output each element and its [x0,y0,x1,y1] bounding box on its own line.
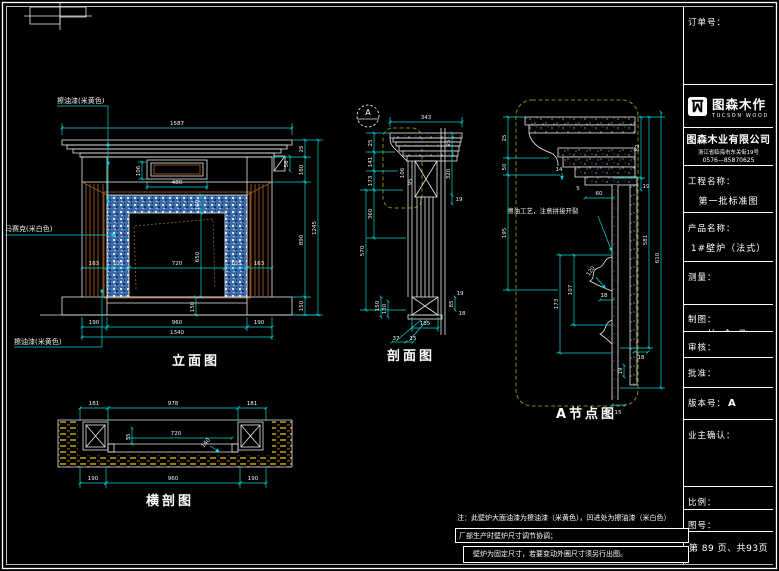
dim-sec-topwidth: 343 [421,115,432,121]
moulding-profile-lower [600,320,612,344]
dim-plan-width: 720 [171,431,182,437]
dim-base-total: 1340 [170,330,184,336]
drawing-canvas: 1587 106 480 56 163 103 720 103 163 100 [0,0,779,571]
figno-cell: 图号： [684,510,773,532]
check-cell: 审核： [684,332,773,358]
dim-total-width: 1587 [170,121,184,127]
section-title: 剖面图 [387,348,435,364]
label-mosaic: 马赛克(米白色) [5,224,53,233]
note-line1: 注：此壁炉大面油漆为擦油漆（米黄色），凹进处为擦油漆（米白色） [457,513,689,523]
dim-plan-bc: 960 [168,476,179,482]
order-label: 订单号： [688,18,726,28]
version-value: A [728,398,736,409]
company-address: 浙江省临海市东关街19号 [685,148,772,156]
dim-plan-tc: 978 [168,401,179,407]
moulding-profile-upper [590,257,612,291]
dim-sec-r3b: 19 [457,291,464,297]
dim-plan-br: 190 [248,476,259,482]
approve-cell: 批准： [684,358,773,388]
dim-det-d1: 25 [502,134,508,141]
firebox-dashed [134,219,215,289]
dim-mosaic-band: 100 [195,199,201,210]
owner-label: 业主确认： [688,431,736,441]
order-cell: 订单号： [684,7,773,85]
draft-cell: 制图： 杜 金 飞 [684,305,773,332]
dim-sec-l5: 570 [360,245,366,256]
project-value: 第一批标准图 [688,194,769,207]
elevation-view: 1587 106 480 56 163 103 720 103 163 100 [5,96,323,369]
dim-det-d9: 173 [554,298,560,309]
note-line2-box: 厂部生产时壁炉尺寸调节协调； [455,528,689,543]
dim-panel-height: 106 [136,165,142,176]
dim-det-d7: 82 [635,145,641,152]
company-name: 图森木业有限公司 [685,131,772,146]
detail-view: 擦油工艺，注意拼接开裂 25 50 195 14 5 60 82 19 581 … [502,100,665,422]
mosaic-band [107,195,247,297]
note-line3-box: 壁炉为固定尺寸，若要变动外圈尺寸须另行出图。 [463,546,689,563]
dim-sec-l3: 173 [368,175,374,186]
dim-leg-left: 163 [89,261,100,267]
dim-sec-r1: 25 [446,139,452,146]
title-block: 订单号： 图森木作 TUCSON WOOD 图森木业有限公司 浙江省临海市东关街… [683,7,773,564]
dim-sec-l1: 25 [368,139,374,146]
project-label: 工程名称： [688,177,736,187]
product-cell: 产品名称： 1#壁炉（法式） [684,213,773,262]
tucson-logo-icon [687,96,708,117]
measure-label: 测量： [688,273,717,283]
dim-band-left: 103 [113,261,124,267]
product-value: 1#壁炉（法式） [688,241,769,254]
dim-right-total: 1245 [312,221,318,235]
logo-name: 图森木作 [712,94,769,113]
company-cell: 图森木业有限公司 浙江省临海市东关街19号 0576—85870625 [684,128,773,166]
product-label: 产品名称： [688,224,736,234]
dim-band-right: 103 [231,261,242,267]
draft-label: 制图： [688,315,717,325]
dim-sec-l4: 360 [368,208,374,219]
check-label: 审核： [688,343,717,353]
detail-title: A节点图 [556,406,617,422]
cad-sheet: 1587 106 480 56 163 103 720 103 163 100 [0,0,779,571]
dim-base-center: 960 [172,320,183,326]
dim-det-d2: 50 [502,163,508,170]
dim-sec-baseb: 130 [382,303,388,314]
version-cell: 版本号：A [684,388,773,420]
approve-label: 批准： [688,369,717,379]
dim-sec-i1: 106 [400,167,406,178]
logo-sub: TUCSON WOOD [712,113,769,119]
dim-opening-width: 720 [172,261,183,267]
dim-plan-tl: 181 [89,401,100,407]
dim-det-d4: 14 [556,167,563,173]
dim-panel-width: 480 [172,180,183,186]
dim-sec-l2: 141 [368,157,374,168]
plan-title: 横剖图 [146,493,194,509]
detail-note: 擦油工艺，注意拼接开裂 [507,206,579,215]
dim-sec-r5: 18 [459,311,466,317]
dim-det-d15: 19 [618,367,624,374]
dim-sec-r2: 320 [446,168,452,179]
owner-cell: 业主确认： [684,420,773,487]
logo-cell: 图森木作 TUCSON WOOD [684,85,773,128]
dim-det-d12: 18 [601,293,608,299]
company-phone: 0576—85870625 [685,157,772,164]
dim-sec-r4: 85 [449,300,455,307]
dim-plan-bl: 190 [88,476,99,482]
dim-det-d3: 195 [502,227,508,238]
dim-right-frieze: 180 [299,164,305,175]
plan-view: 181 978 181 35 720 140 190 960 190 横剖图 [58,401,292,509]
scale-cell: 比例： [684,487,773,510]
measure-cell: 测量： [684,262,773,305]
section-view: A 343 25 141 173 360 570 150 130 25 320 … [357,105,466,364]
scale-label: 比例： [688,498,717,508]
dim-base-left: 190 [89,320,100,326]
dim-det-d16: 18 [638,355,645,361]
dim-sec-b3: 15 [410,336,417,342]
label-paint-bottom: 擦油漆(米黄色) [14,337,62,346]
elevation-title: 立面图 [172,353,220,369]
figno-label: 图号： [688,521,717,531]
dim-plan-depth: 35 [126,433,132,440]
dim-right-top: 25 [299,145,305,152]
dim-plan-tr: 181 [247,401,258,407]
version-label: 版本号： [688,399,726,409]
project-cell: 工程名称： 第一批标准图 [684,166,773,213]
dim-det-d10: 107 [568,284,574,295]
dim-sec-basea: 150 [375,300,381,311]
dim-base-right: 190 [254,320,265,326]
dim-right-body: 890 [299,234,305,245]
dim-opening-height: 650 [195,251,201,262]
dim-det-d6: 60 [596,191,603,197]
dim-right-base: 150 [299,300,305,311]
dim-det-d5: 5 [576,186,580,192]
dim-plan-leader: 140 [201,437,213,449]
label-paint-top: 擦油漆(米黄色) [57,96,105,105]
dim-det-d14: 610 [655,252,661,263]
dim-sec-r3: 19 [456,197,463,203]
dim-hearth-height: 150 [190,301,196,312]
dim-sec-i2: 95 [408,178,414,185]
page-info: 第 89 页、共93页 [684,532,773,564]
dim-corbel: 56 [284,160,290,167]
detail-marker-letter: A [365,108,371,117]
dim-det-d13: 581 [643,235,649,246]
dim-det-d11: 120 [586,265,597,277]
dim-sec-b2: 37 [393,336,400,342]
dim-leg-right: 163 [254,261,265,267]
